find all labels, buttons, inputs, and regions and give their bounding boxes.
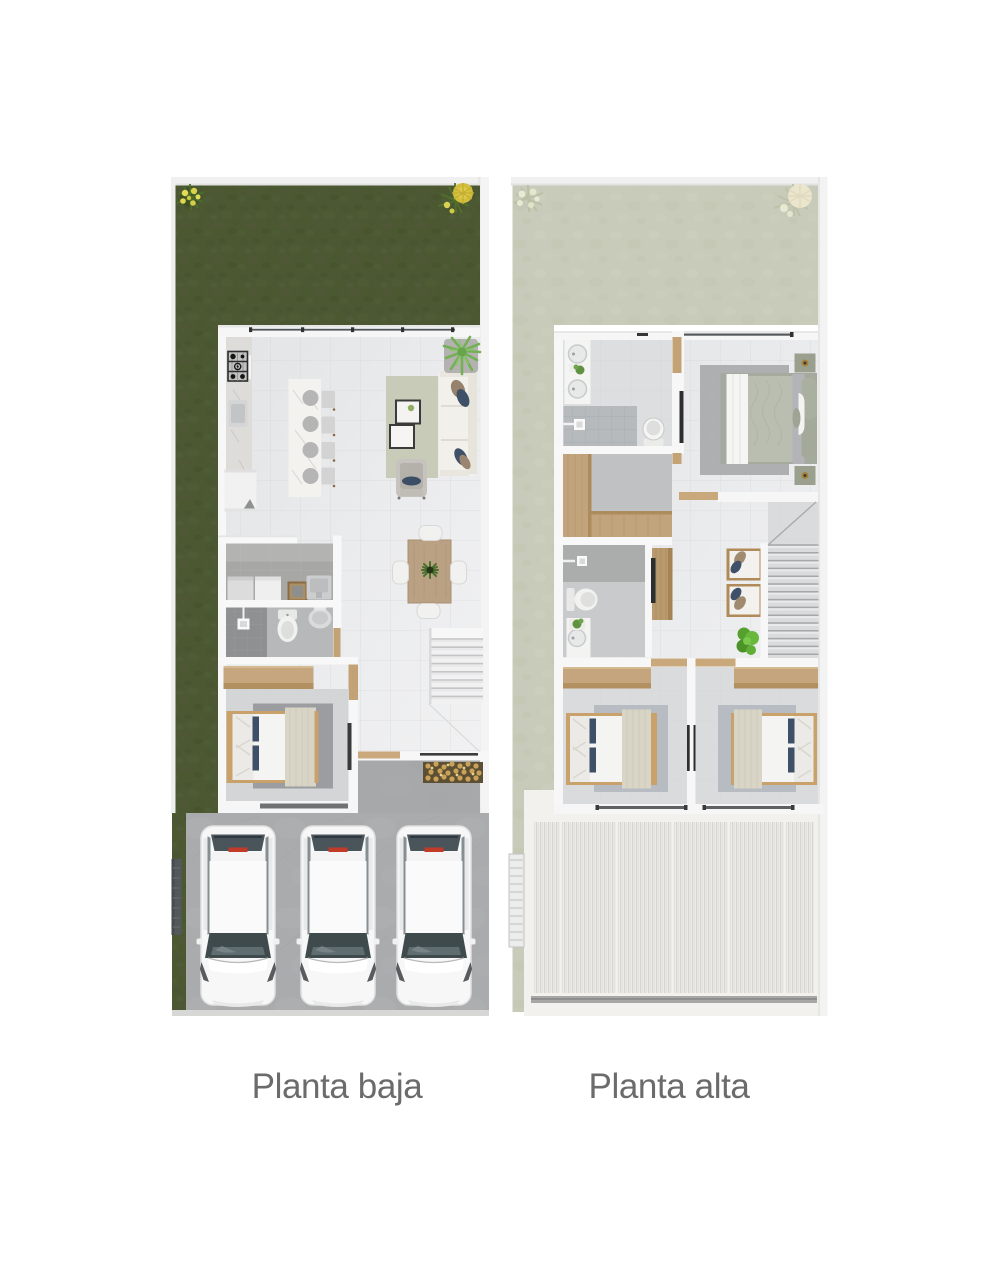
svg-text:Planta alta: Planta alta [589, 1067, 751, 1106]
svg-text:Planta baja: Planta baja [252, 1067, 424, 1106]
